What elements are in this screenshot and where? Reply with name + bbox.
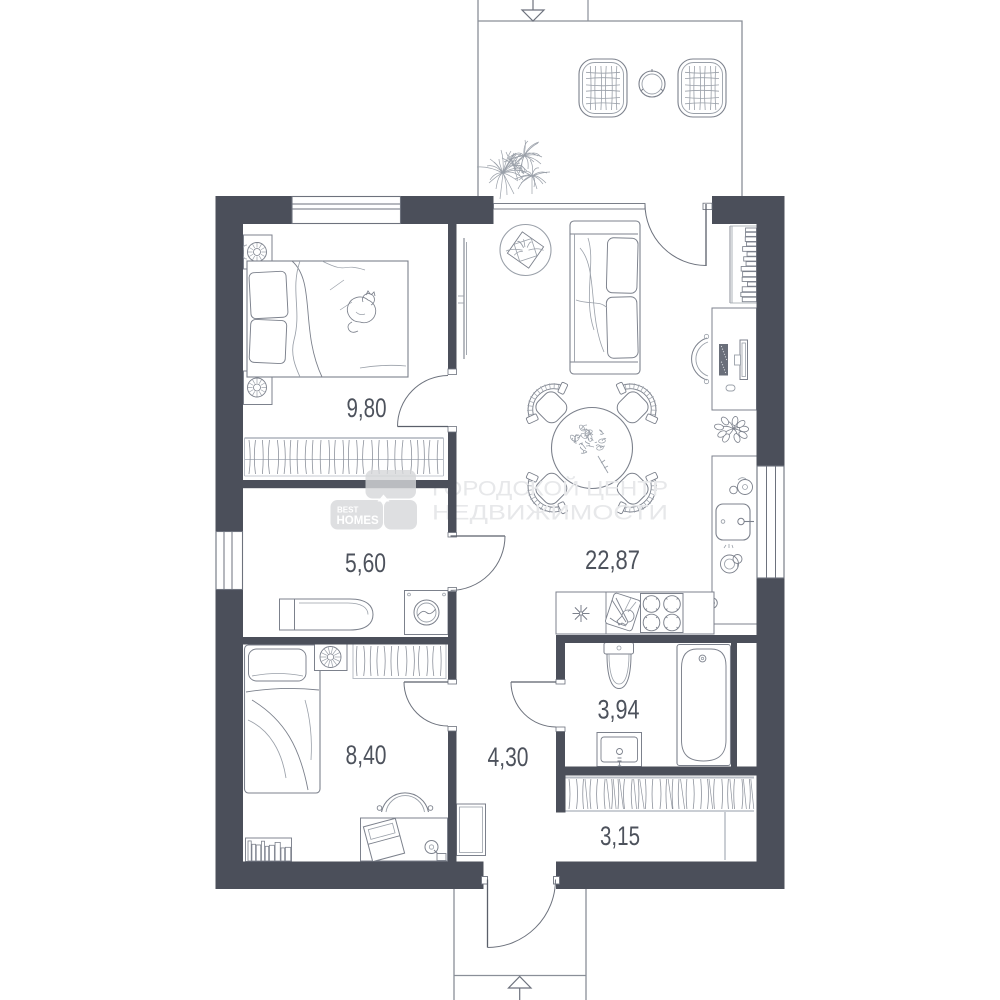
svg-text:8,40: 8,40 [346, 740, 387, 770]
svg-text:22,87: 22,87 [585, 545, 640, 575]
svg-text:BEST: BEST [337, 506, 358, 515]
svg-text:HOMES: HOMES [337, 515, 380, 527]
svg-text:5,60: 5,60 [345, 548, 386, 578]
svg-text:ГОРОДСКОЙ ЦЕНТР: ГОРОДСКОЙ ЦЕНТР [432, 476, 668, 501]
svg-text:9,80: 9,80 [347, 393, 387, 423]
svg-text:4,30: 4,30 [488, 742, 529, 772]
svg-text:3,15: 3,15 [600, 821, 640, 851]
svg-text:НЕДВИЖИМОСТИ: НЕДВИЖИМОСТИ [432, 501, 668, 525]
svg-text:3,94: 3,94 [598, 695, 640, 725]
